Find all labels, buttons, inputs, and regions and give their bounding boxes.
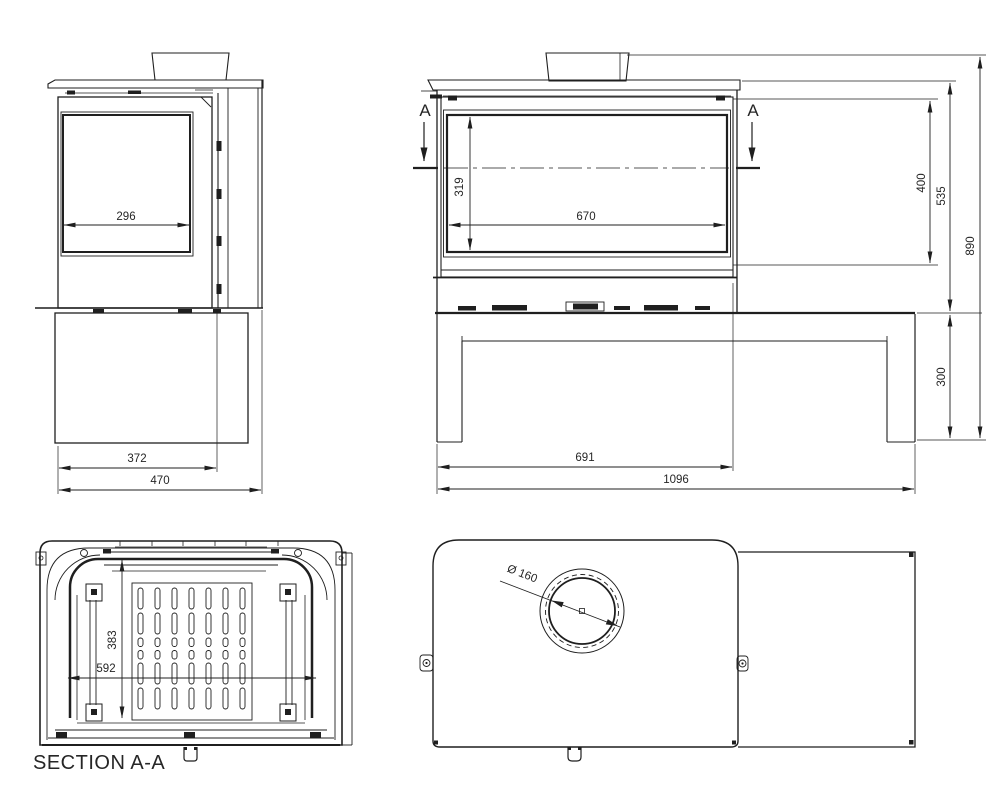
grate-slots xyxy=(138,588,245,709)
section-view: 383 592 SECTION A-A xyxy=(33,541,352,774)
side-body-back xyxy=(217,80,263,308)
side-dimensions: 296 372 470 xyxy=(58,211,262,494)
dim-section-inner-depth: 383 xyxy=(107,630,119,649)
side-door-panel xyxy=(58,97,212,308)
top-flue-outlet xyxy=(540,569,624,653)
dim-section-inner-width: 592 xyxy=(96,663,115,675)
dim-front-stove-width: 691 xyxy=(575,452,594,464)
dim-front-firebox-height: 400 xyxy=(916,173,928,192)
dim-front-bench-height: 300 xyxy=(936,367,948,386)
section-dimensions: 383 592 xyxy=(68,560,316,718)
front-feet xyxy=(458,302,710,311)
top-view: Ø 160 xyxy=(420,540,915,761)
front-glass-window xyxy=(447,115,727,252)
section-title: SECTION A-A xyxy=(33,752,165,774)
front-body xyxy=(433,90,737,312)
dim-front-total-width: 1096 xyxy=(663,474,689,486)
technical-drawing-canvas: 296 372 470 xyxy=(0,0,1000,785)
front-dimensions: 319 670 400 535 300 890 691 1096 xyxy=(437,55,986,494)
side-top-plate xyxy=(48,80,263,95)
side-view: 296 372 470 xyxy=(35,53,263,494)
side-base-plinth xyxy=(35,308,263,443)
dim-side-total-depth: 470 xyxy=(150,475,169,487)
side-flue-collar xyxy=(152,53,229,80)
section-grate xyxy=(132,583,252,720)
dim-side-glass-width: 296 xyxy=(116,211,135,223)
front-flue-collar xyxy=(546,53,629,81)
front-bench xyxy=(435,313,915,442)
section-marker-left: A xyxy=(419,101,431,120)
section-cut-marks: A A xyxy=(413,101,760,168)
dim-front-glass-height: 319 xyxy=(454,177,466,196)
dim-side-door-depth: 372 xyxy=(127,453,146,465)
dim-front-stove-height: 535 xyxy=(936,186,948,205)
top-flue-dimension: Ø 160 xyxy=(500,563,620,629)
top-side-latch-left xyxy=(420,655,433,671)
dim-front-glass-width: 670 xyxy=(576,211,595,223)
section-marker-right: A xyxy=(747,101,759,120)
dim-front-total-height: 890 xyxy=(965,236,977,255)
top-door-handle xyxy=(568,747,581,761)
dim-flue-diameter: Ø 160 xyxy=(505,563,539,585)
top-bench xyxy=(738,552,915,747)
stove-dimension-drawing: 296 372 470 xyxy=(0,0,1000,785)
front-view: A A 319 670 400 535 300 890 xyxy=(413,53,986,494)
section-side-liners xyxy=(36,552,346,721)
